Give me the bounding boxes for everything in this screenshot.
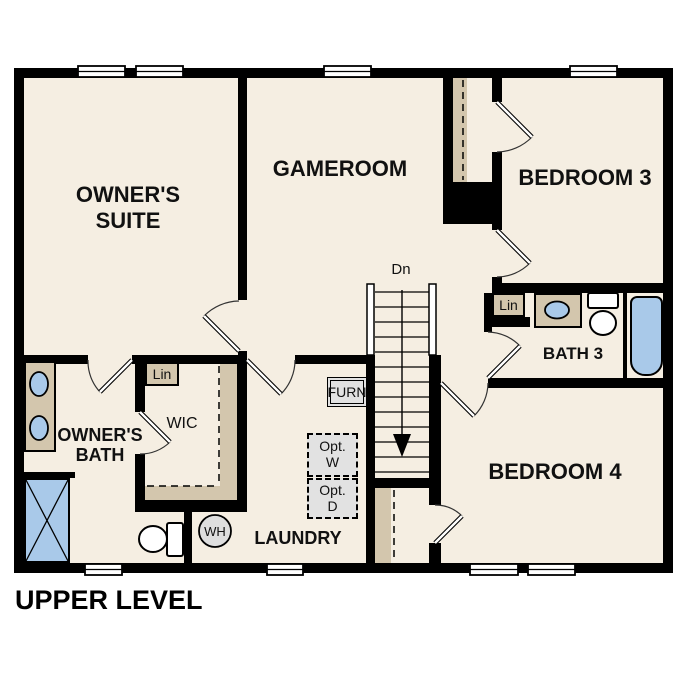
opt-dryer-line1: Opt. [319, 482, 345, 498]
door-owners-suite [204, 301, 239, 351]
room-label-gameroom: GAMEROOM [265, 156, 415, 182]
opt-dryer-line2: D [327, 498, 337, 514]
opt-washer-line1: Opt. [319, 438, 345, 454]
door-bedroom3 [497, 230, 530, 277]
closet-rods [147, 80, 463, 561]
label-opt-washer: Opt. W [307, 438, 358, 470]
staircase [367, 284, 436, 472]
owners-bath-line1: OWNER'S [57, 425, 142, 445]
label-furnace: FURN [327, 384, 367, 400]
label-linen-owners: Lin [145, 366, 179, 382]
sink-icon [545, 302, 569, 319]
window-icons-bottom [85, 564, 575, 575]
room-label-laundry: LAUNDRY [248, 528, 348, 548]
sink-icon [30, 372, 48, 396]
page-title: UPPER LEVEL [15, 585, 203, 616]
room-label-bedroom3: BEDROOM 3 [510, 165, 660, 191]
toilet-icon [588, 293, 618, 335]
door-bedroom4 [441, 383, 488, 416]
room-label-bedroom4: BEDROOM 4 [480, 459, 630, 485]
owners-bath-line2: BATH [76, 445, 125, 465]
sink-icon [30, 416, 48, 440]
room-label-owners-bath: OWNER'S BATH [50, 425, 150, 465]
label-opt-dryer: Opt. D [307, 482, 358, 514]
room-label-owners-suite: OWNER'S SUITE [53, 182, 203, 234]
label-water-heater: WH [199, 524, 231, 540]
stair-down-arrow-icon [393, 434, 411, 457]
opt-washer-line2: W [326, 454, 339, 470]
room-label-wic: WIC [152, 416, 212, 432]
shower-glass-lines [26, 480, 68, 561]
room-label-bath3: BATH 3 [523, 344, 623, 364]
door-bath3 [488, 332, 520, 378]
door-bedroom3-closet [497, 102, 532, 152]
window-icons-top [78, 66, 617, 77]
stair-rail-left [367, 284, 374, 355]
owners-suite-line2: SUITE [96, 208, 161, 233]
door-bedroom4-closet [435, 505, 462, 543]
label-stairs-dn: Dn [386, 262, 416, 278]
label-linen-bath3: Lin [492, 297, 525, 313]
door-owners-bath [88, 360, 132, 392]
toilet-icon [139, 523, 183, 556]
floor-plan: OWNER'S SUITE GAMEROOM BEDROOM 3 BATH 3 … [0, 0, 687, 687]
door-laundry [247, 360, 295, 394]
stair-rail-right [429, 284, 436, 355]
owners-suite-line1: OWNER'S [76, 182, 180, 207]
